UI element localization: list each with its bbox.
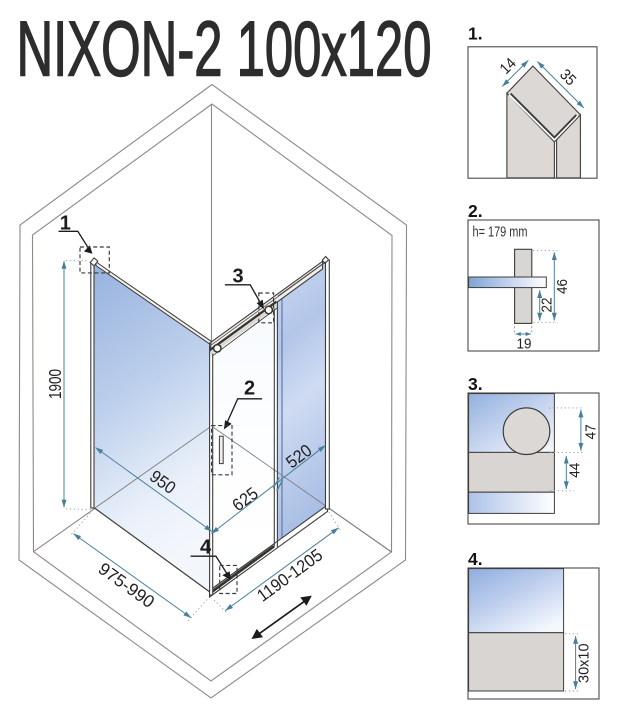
svg-text:3: 3 <box>232 265 243 287</box>
svg-text:46: 46 <box>555 279 571 294</box>
svg-text:h= 179 mm: h= 179 mm <box>473 225 528 241</box>
svg-text:4: 4 <box>200 536 212 558</box>
svg-text:19: 19 <box>517 337 532 353</box>
svg-text:3.: 3. <box>468 374 483 394</box>
svg-text:1.: 1. <box>468 24 483 44</box>
svg-text:4.: 4. <box>468 549 483 569</box>
svg-text:47: 47 <box>584 424 600 439</box>
svg-text:30x10: 30x10 <box>577 643 593 683</box>
svg-text:NIXON-2 100x120: NIXON-2 100x120 <box>17 5 432 93</box>
svg-text:2: 2 <box>244 378 255 400</box>
svg-text:22: 22 <box>540 298 556 313</box>
svg-text:2.: 2. <box>468 201 483 221</box>
svg-text:44: 44 <box>568 463 584 478</box>
svg-text:1900: 1900 <box>45 369 65 399</box>
